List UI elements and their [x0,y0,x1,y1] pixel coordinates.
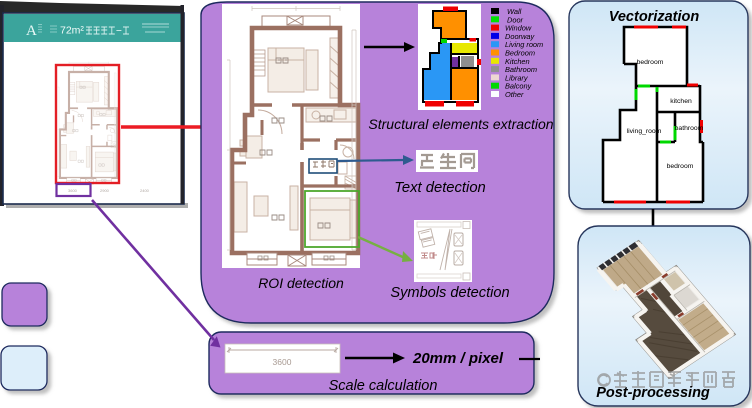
svg-text:bedroom: bedroom [667,163,694,170]
svg-text:ROI detection: ROI detection [258,275,344,291]
svg-text:Structural elements extraction: Structural elements extraction [368,116,553,132]
svg-text:bathroom: bathroom [675,125,704,132]
svg-text:kitchen: kitchen [670,98,692,105]
svg-text:living_room: living_room [627,128,662,135]
svg-text:Symbols detection: Symbols detection [390,285,509,301]
svg-text:Vectorization: Vectorization [609,9,700,25]
svg-text:3600: 3600 [273,357,292,367]
svg-text:Other: Other [505,90,524,99]
svg-text:bedroom: bedroom [637,59,664,66]
svg-text:72m²: 72m² [60,25,84,37]
svg-text:2400: 2400 [140,188,150,193]
svg-text:A: A [26,23,37,39]
svg-text:3600: 3600 [68,188,78,193]
svg-text:Scale calculation: Scale calculation [329,378,438,394]
svg-text:Post-processing: Post-processing [596,385,710,401]
svg-text:20mm / pixel: 20mm / pixel [412,350,504,367]
svg-text:2900: 2900 [100,188,110,193]
svg-text:Text detection: Text detection [394,180,486,196]
